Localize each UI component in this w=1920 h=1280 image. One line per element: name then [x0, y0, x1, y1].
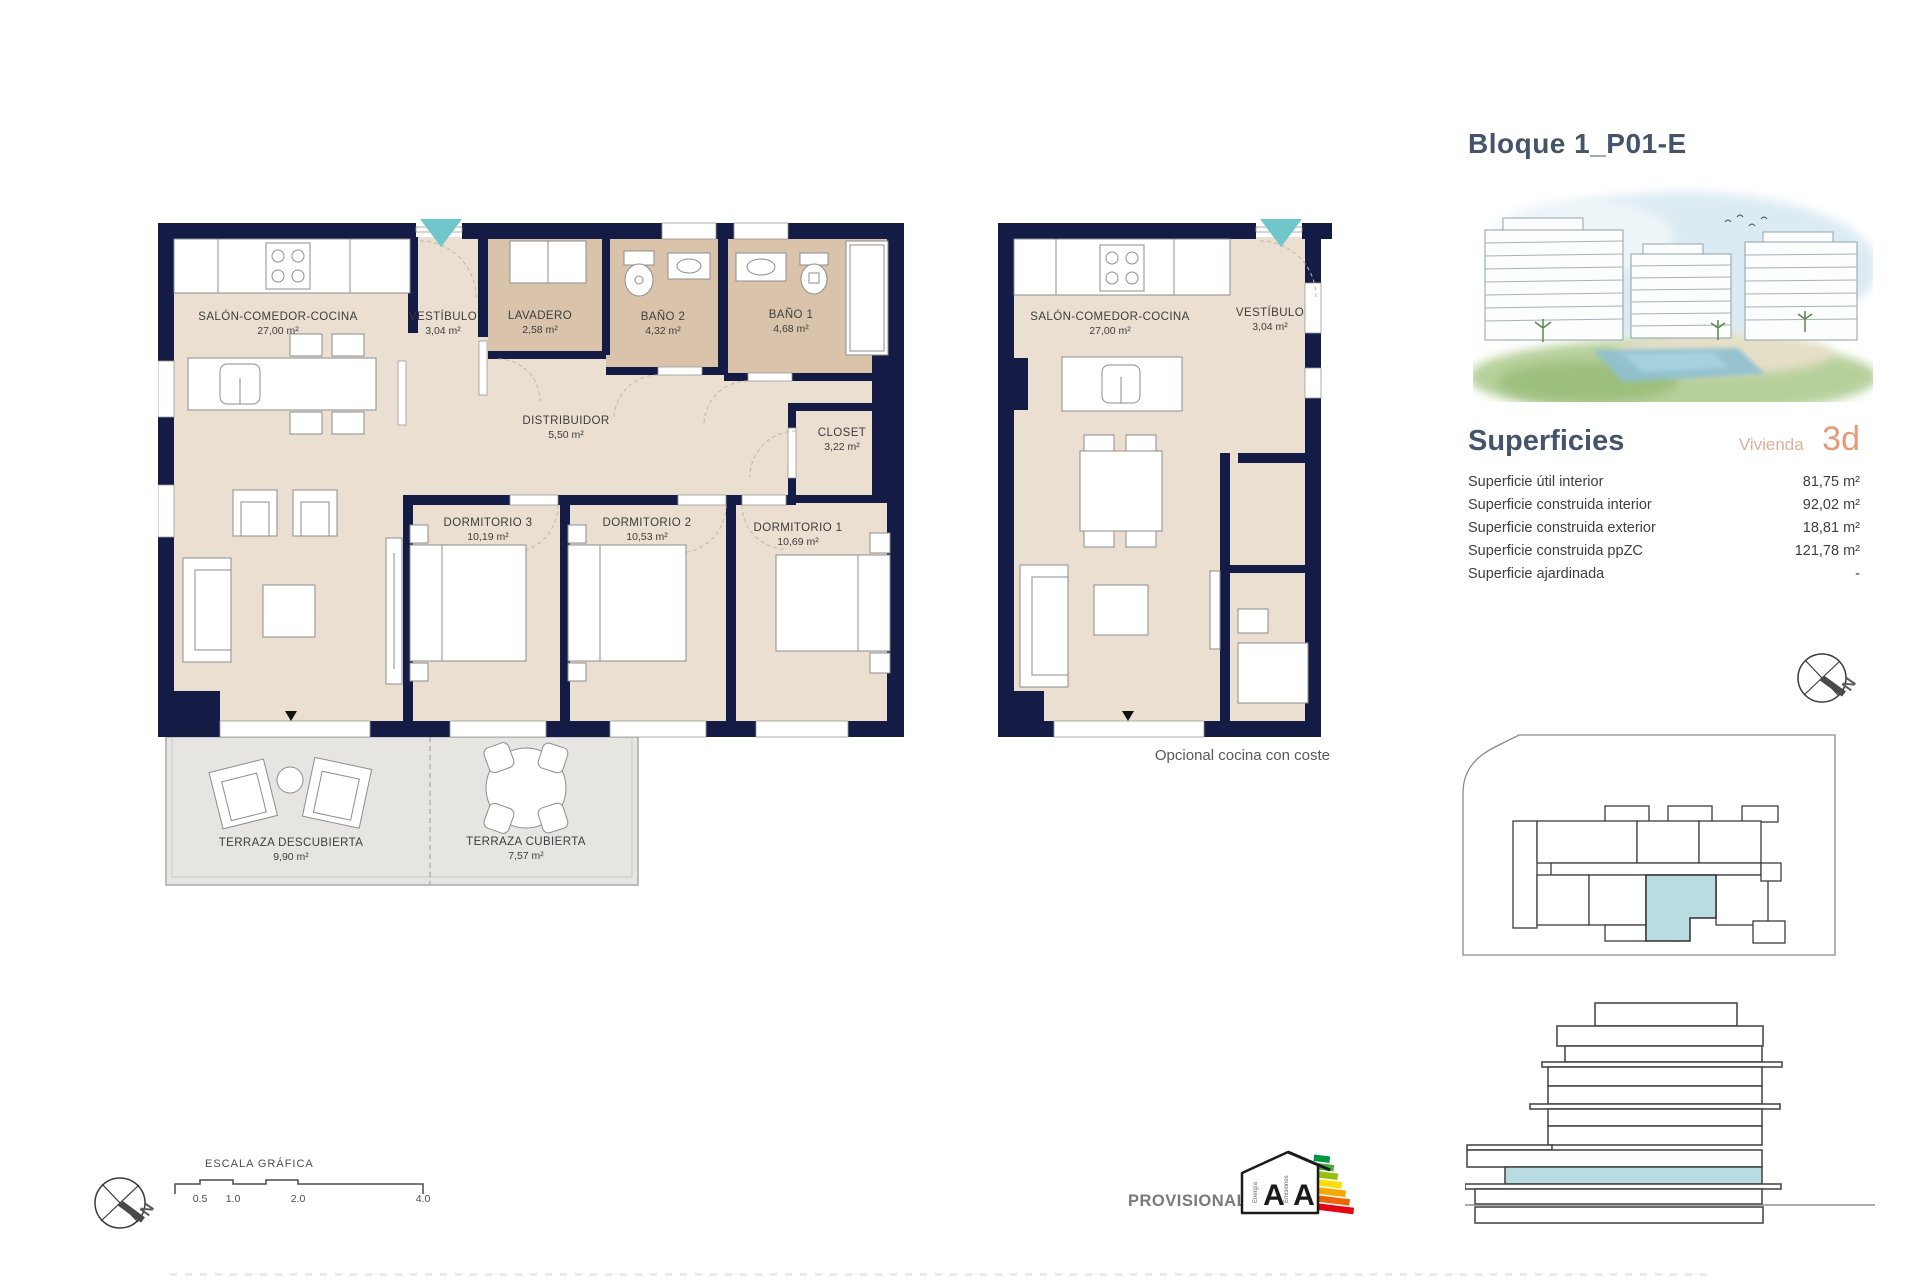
room-area: 5,50 m²	[548, 429, 584, 441]
table-row: Superficie útil interior 81,75 m²	[1468, 471, 1860, 494]
table-row: Superficie ajardinada -	[1468, 563, 1860, 586]
room-area: 4,68 m²	[773, 323, 809, 335]
highlighted-unit	[1646, 875, 1716, 941]
row-label: Superficie ajardinada	[1468, 563, 1604, 586]
energy-word: Energía	[1253, 1181, 1259, 1203]
room-label: SALÓN-COMEDOR-COCINA	[198, 310, 357, 323]
building-middle	[1631, 244, 1731, 338]
superficies-panel: Superficies Vivienda 3d Superficie útil …	[1468, 420, 1860, 586]
row-value: 18,81 m²	[1803, 517, 1860, 540]
scale-tick: 2.0	[291, 1193, 306, 1205]
room-label: DORMITORIO 3	[444, 517, 533, 529]
elevation-key-plan	[1465, 998, 1885, 1238]
energy-letter: A	[1293, 1179, 1315, 1212]
table-row: Superficie construida ppZC 121,78 m²	[1468, 540, 1860, 563]
superficies-heading: Superficies	[1468, 425, 1624, 458]
scale-tick: 4.0	[416, 1193, 431, 1205]
room-label: SALÓN-COMEDOR-COCINA	[1030, 310, 1189, 323]
room-area: 27,00 m²	[257, 325, 299, 337]
optional-plan: SALÓN-COMEDOR-COCINA 27,00 m² VESTÍBULO …	[998, 213, 1332, 773]
scale-bar: 0.5 1.0 2.0 4.0	[160, 1172, 450, 1226]
room-area: 4,32 m²	[645, 325, 681, 337]
building-rendering-image	[1473, 182, 1873, 402]
superficies-table: Superficie útil interior 81,75 m² Superf…	[1468, 471, 1860, 586]
room-label: TERRAZA CUBIERTA	[466, 836, 586, 848]
basement-level	[1475, 1207, 1763, 1223]
row-label: Superficie construida interior	[1468, 494, 1652, 517]
row-label: Superficie construida exterior	[1468, 517, 1656, 540]
row-label: Superficie construida ppZC	[1468, 540, 1643, 563]
room-label: VESTÍBULO	[409, 310, 477, 323]
energy-word: Emisiones	[1284, 1175, 1290, 1203]
room-label: TERRAZA DESCUBIERTA	[219, 837, 364, 849]
room-area: 10,19 m²	[467, 531, 509, 543]
room-label: DORMITORIO 2	[603, 517, 692, 529]
site-key-plan	[1455, 723, 1875, 973]
row-value: 121,78 m²	[1795, 540, 1860, 563]
room-area: 27,00 m²	[1089, 325, 1131, 337]
room-area: 9,90 m²	[273, 851, 309, 863]
row-value: 81,75 m²	[1803, 471, 1860, 494]
room-area: 7,57 m²	[508, 850, 544, 862]
energy-rating-icon: Energía A Emisiones A	[1230, 1143, 1360, 1228]
room-area: 3,22 m²	[824, 441, 860, 453]
scale-bar-label: ESCALA GRÁFICA	[205, 1158, 314, 1170]
compass-icon: N	[1780, 636, 1872, 720]
vivienda-label: Vivienda	[1739, 435, 1804, 454]
main-floor-plan: SALÓN-COMEDOR-COCINA 27,00 m² VESTÍBULO …	[158, 213, 920, 913]
room-label: CLOSET	[818, 427, 866, 439]
room-area: 3,04 m²	[1252, 321, 1288, 333]
room-label: DORMITORIO 1	[754, 522, 843, 534]
energy-letter: A	[1263, 1179, 1285, 1212]
page-title: Bloque 1_P01-E	[1468, 128, 1687, 160]
room-label: VESTÍBULO	[1236, 306, 1304, 319]
floorplan-sheet: SALÓN-COMEDOR-COCINA 27,00 m² VESTÍBULO …	[0, 0, 1920, 1280]
vivienda-type: 3d	[1822, 420, 1860, 458]
room-label: LAVADERO	[508, 310, 572, 322]
room-area: 10,69 m²	[777, 536, 819, 548]
room-label: BAÑO 1	[769, 308, 814, 321]
room-area: 2,58 m²	[522, 324, 558, 336]
optional-plan-caption: Opcional cocina con coste	[1080, 747, 1330, 764]
room-area: 3,04 m²	[425, 325, 461, 337]
scale-tick: 1.0	[226, 1193, 241, 1205]
row-label: Superficie útil interior	[1468, 471, 1603, 494]
row-value: -	[1855, 563, 1860, 586]
room-label: DISTRIBUIDOR	[522, 415, 609, 427]
row-value: 92,02 m²	[1803, 494, 1860, 517]
building-right	[1745, 232, 1857, 340]
scan-artifact	[170, 1273, 1710, 1276]
building-left	[1485, 218, 1623, 340]
room-label: BAÑO 2	[641, 310, 686, 323]
table-row: Superficie construida exterior 18,81 m²	[1468, 517, 1860, 540]
table-row: Superficie construida interior 92,02 m²	[1468, 494, 1860, 517]
scale-tick: 0.5	[193, 1193, 208, 1205]
room-area: 10,53 m²	[626, 531, 668, 543]
